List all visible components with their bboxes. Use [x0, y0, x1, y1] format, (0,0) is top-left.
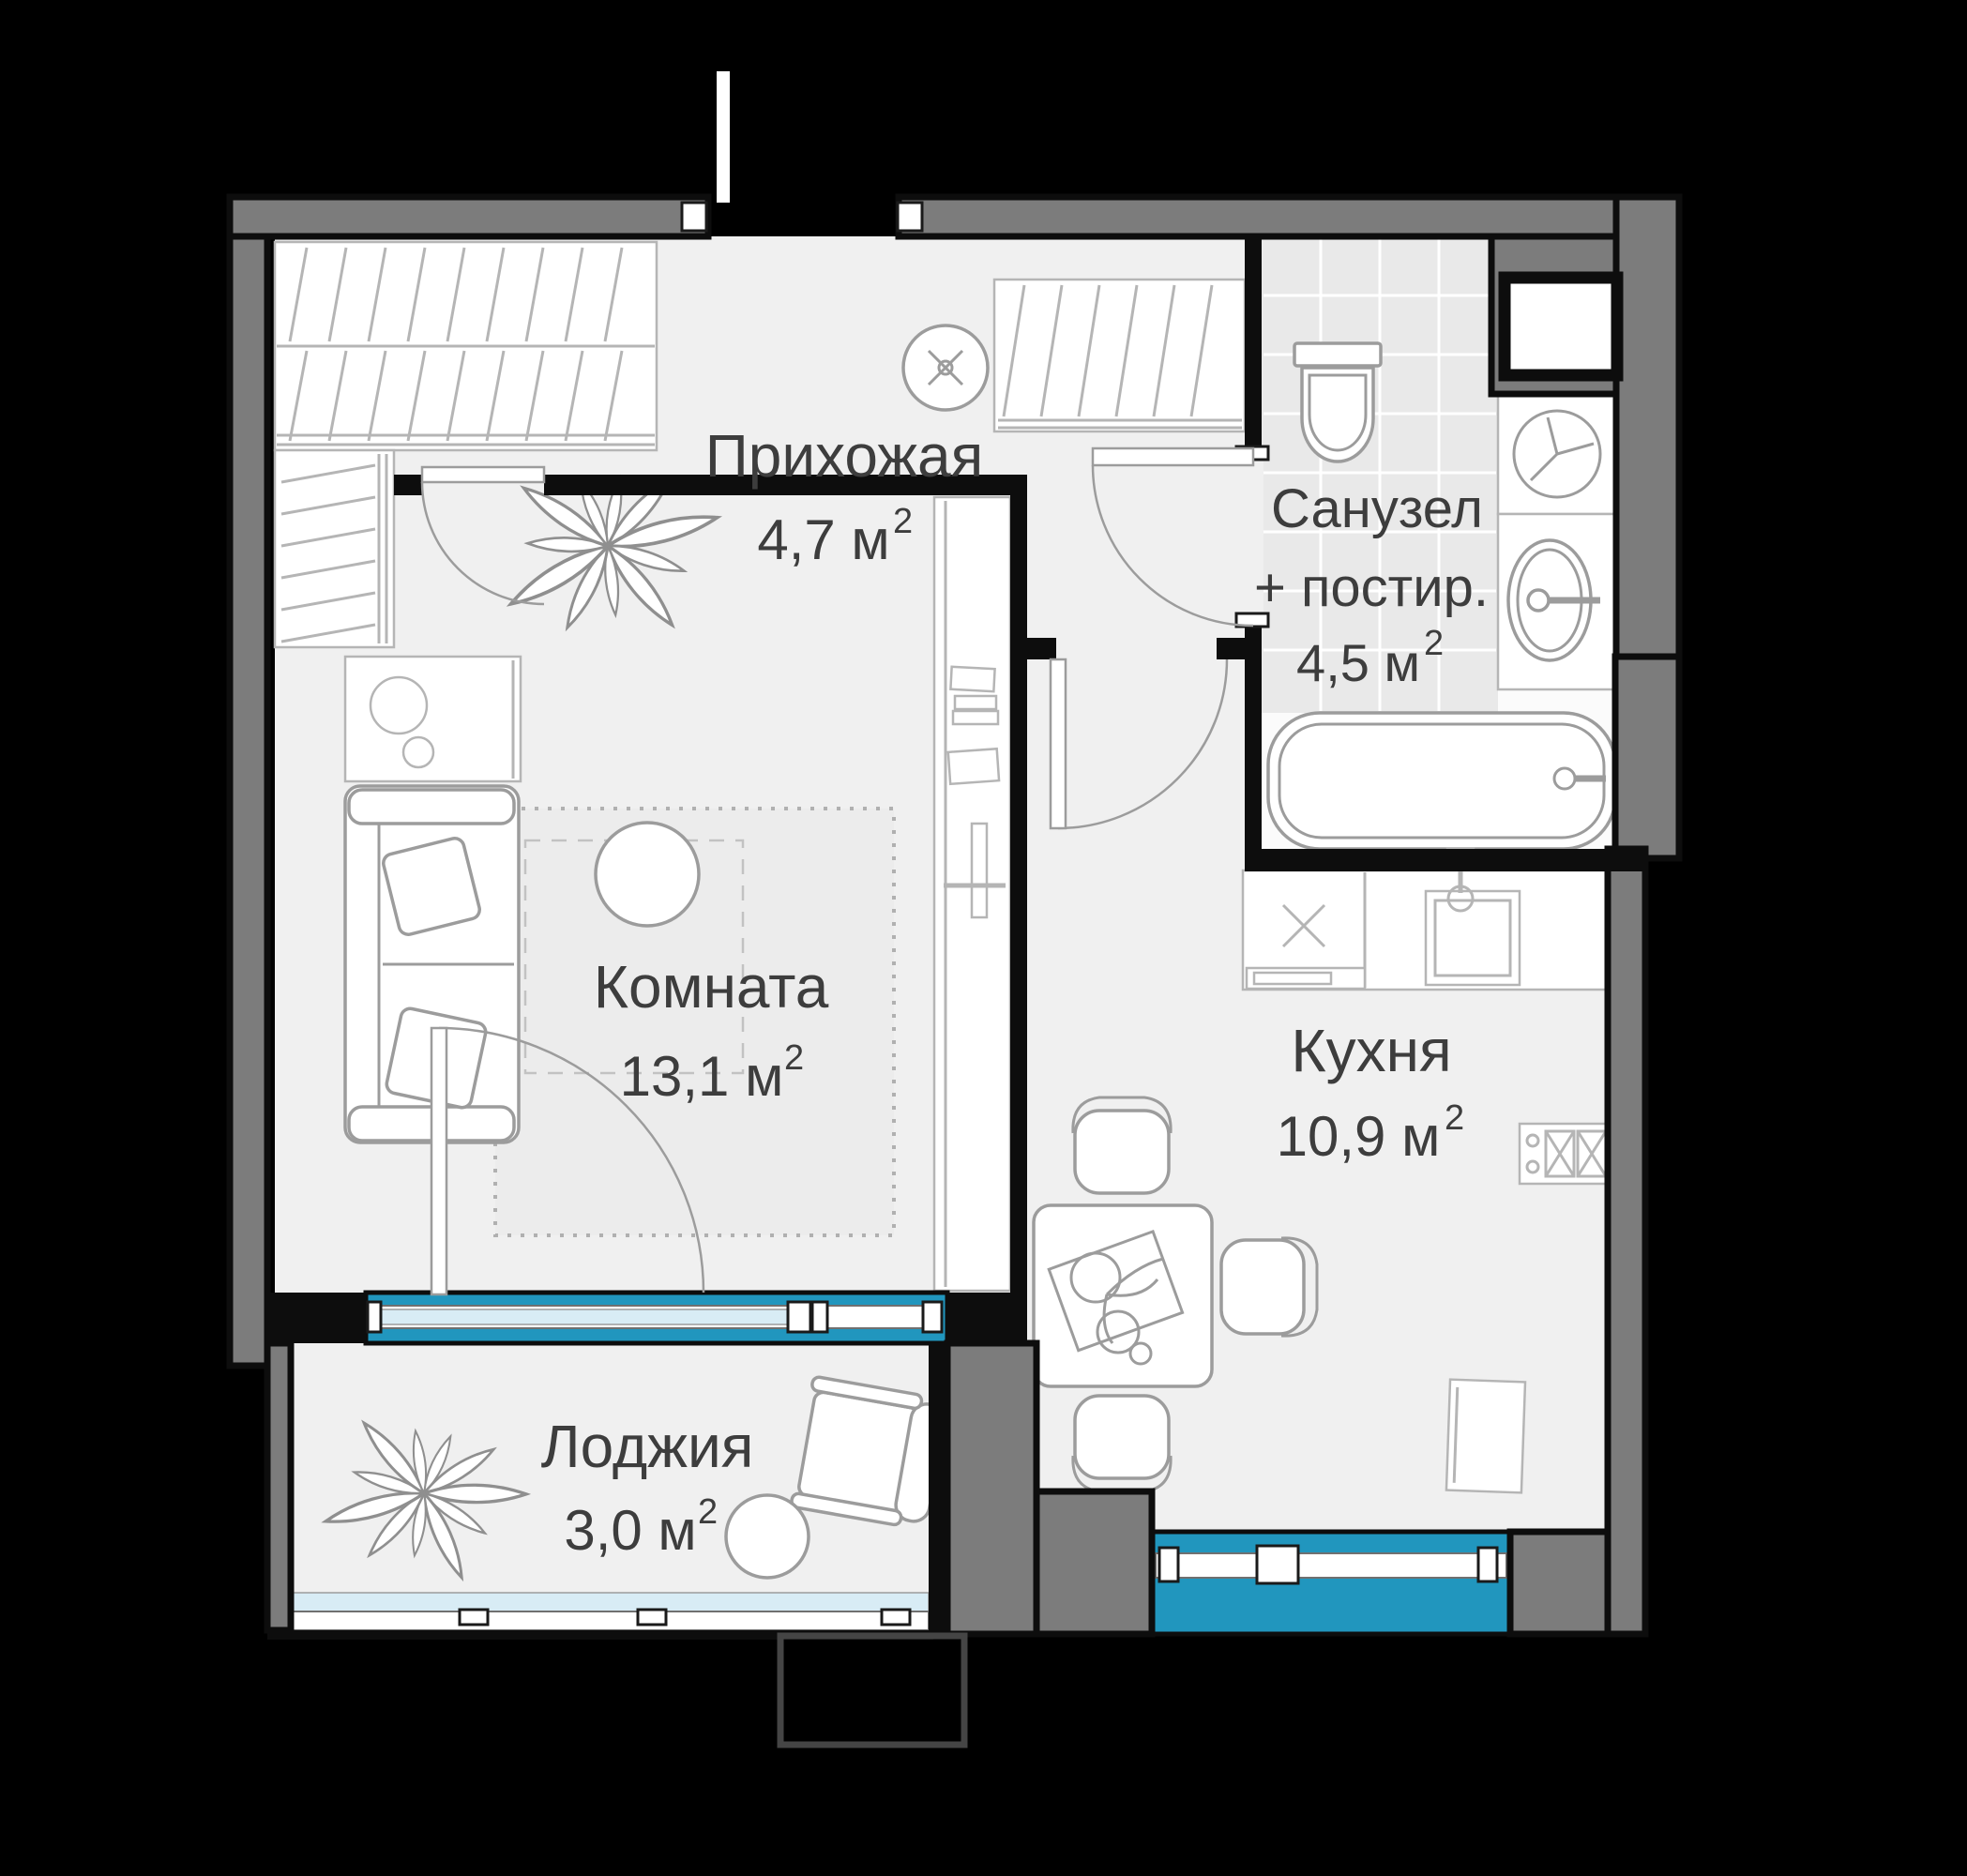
decor-plate	[371, 677, 427, 734]
tv-stand	[934, 497, 1010, 1291]
pouf	[596, 823, 699, 926]
kitchen-label: Кухня	[1291, 1017, 1451, 1084]
cooktop-icon	[1520, 1124, 1608, 1184]
coat-closet	[994, 280, 1245, 431]
dining-table	[1034, 1205, 1212, 1386]
toilet-icon	[1294, 343, 1381, 461]
kitchen-area-sup: 2	[1445, 1098, 1464, 1138]
wall-right-bathroom	[1616, 197, 1679, 666]
kitchen-window	[1152, 1532, 1510, 1634]
living-room-label: Комната	[594, 953, 829, 1021]
wall-loggia-left	[267, 1343, 291, 1630]
side-table	[345, 657, 521, 781]
wall-right-step	[1615, 657, 1679, 858]
living-room-area-sup: 2	[784, 1038, 804, 1078]
living-room-area: 13,1 м	[620, 1045, 784, 1108]
bathroom-sink-icon	[1498, 514, 1616, 689]
wall-right-kitchen	[1608, 849, 1645, 1634]
adjacent-loggia-outline	[780, 1636, 964, 1745]
entrance-door-leaf	[717, 71, 730, 203]
bathroom-label-2: + постир.	[1254, 557, 1489, 618]
loggia-area-sup: 2	[698, 1492, 718, 1532]
wall-left	[230, 197, 267, 1366]
kitchen-area: 10,9 м	[1277, 1105, 1441, 1168]
decor-bowl	[403, 737, 433, 767]
dining-chair	[1073, 1097, 1171, 1193]
floor-plan: Прихожая 4,7 м 2 Санузел + постир. 4,5 м…	[0, 0, 1967, 1876]
books-icon	[955, 696, 996, 709]
hallway-area-sup: 2	[893, 502, 913, 541]
bathroom-area-sup: 2	[1424, 624, 1444, 663]
tv-icon	[972, 824, 987, 917]
wall-kitchen-sw-1	[947, 1343, 1036, 1634]
ventilation-shaft	[1505, 278, 1617, 375]
floor-plan-canvas: Прихожая 4,7 м 2 Санузел + постир. 4,5 м…	[0, 0, 1967, 1876]
loggia-glazing	[277, 1593, 929, 1630]
books-icon	[950, 667, 994, 691]
dining-chair	[1073, 1396, 1171, 1491]
sofa-armrest	[349, 790, 514, 824]
door-jamb	[898, 203, 922, 231]
wall-top-right	[899, 197, 1679, 236]
drawer-handle	[1254, 973, 1331, 984]
balcony-door-glass	[380, 1309, 804, 1324]
entrance-door	[682, 71, 922, 231]
loggia-label: Лоджия	[541, 1413, 754, 1480]
bathtub-icon	[1268, 713, 1615, 849]
corridor-floor	[1027, 475, 1245, 662]
dining-chair	[1221, 1238, 1317, 1336]
linen-closet	[275, 450, 394, 647]
hallway-label: Прихожая	[705, 422, 984, 490]
kitchen-cabinet	[1446, 1380, 1525, 1493]
wall-kitchen-sw-2	[1036, 1491, 1152, 1634]
wall-bottom-right	[1510, 1532, 1608, 1634]
books-icon	[953, 711, 998, 724]
washing-machine-icon	[1498, 392, 1616, 514]
bathroom-area: 4,5 м	[1296, 633, 1420, 692]
hallway-area: 4,7 м	[757, 508, 889, 571]
bathroom-label-1: Санузел	[1271, 478, 1483, 539]
books-icon	[948, 749, 999, 784]
loggia-area: 3,0 м	[564, 1499, 696, 1562]
wardrobe-closet	[275, 242, 657, 450]
balcony-window-block	[366, 1293, 947, 1343]
wall-top-left	[230, 197, 708, 236]
loggia-table	[726, 1495, 809, 1578]
ceiling-fan-icon	[903, 325, 988, 410]
pillow	[382, 837, 482, 937]
door-jamb	[682, 203, 706, 231]
